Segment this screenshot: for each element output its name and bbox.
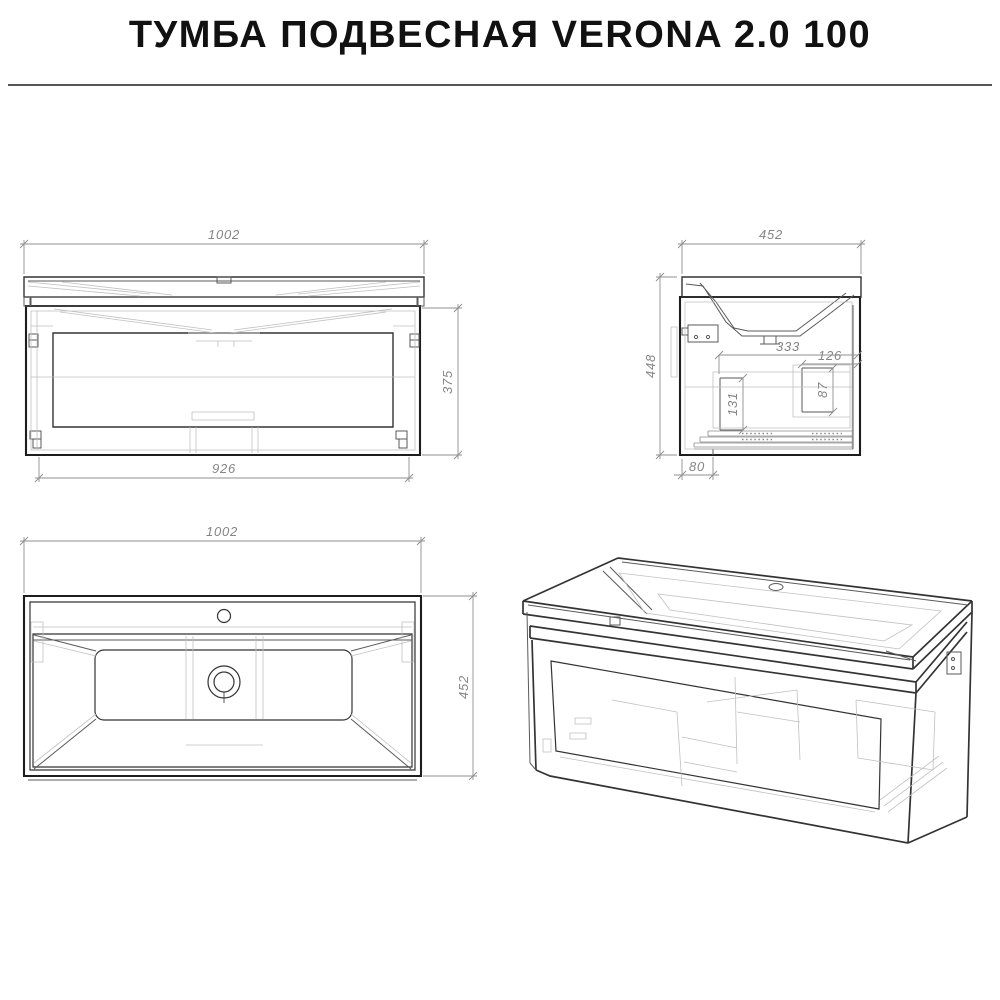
perspective-view bbox=[523, 558, 972, 843]
top-sink-outer-outline bbox=[24, 596, 421, 776]
front-dim-height-right-label: 375 bbox=[440, 370, 455, 394]
side-dim-bottom-offset-label: 80 bbox=[689, 459, 705, 474]
technical-drawing-canvas: 1002 375 926 452 448 333 126 131 87 80 bbox=[0, 0, 1000, 1000]
side-basin-section-and-details bbox=[682, 283, 854, 455]
top-drain-inner-ring bbox=[214, 672, 234, 692]
perspective-bracket-hole-top bbox=[952, 658, 955, 661]
front-bracket-details bbox=[29, 334, 419, 448]
top-dim-depth-label: 452 bbox=[456, 675, 471, 699]
front-cabinet-outline bbox=[26, 306, 420, 455]
side-rail-hole-dots bbox=[742, 434, 842, 440]
side-dim-inner-width-small-label: 126 bbox=[818, 348, 842, 363]
front-sink-rim-band bbox=[24, 277, 424, 297]
perspective-bracket-hole-bottom bbox=[952, 667, 955, 670]
side-internal-faint-panels bbox=[671, 302, 852, 449]
front-view: 1002 375 926 bbox=[20, 227, 462, 482]
side-dim-height-left-label: 448 bbox=[643, 354, 658, 378]
front-drawer-front-outline bbox=[53, 333, 393, 427]
side-dim-width-top-label: 452 bbox=[759, 227, 783, 242]
top-basin-floor bbox=[95, 650, 352, 720]
top-basin-corner-slopes bbox=[28, 635, 417, 780]
perspective-outer-wireframe bbox=[523, 558, 972, 843]
front-dim-width-bottom-label: 926 bbox=[212, 461, 236, 476]
side-dim-inner-height-small-label: 87 bbox=[815, 382, 830, 398]
side-dim-inner-height-label: 131 bbox=[725, 392, 740, 416]
side-dim-inner-width-label: 333 bbox=[776, 339, 800, 354]
side-bracket-hole-right bbox=[706, 335, 709, 338]
top-faucet-hole bbox=[218, 610, 231, 623]
top-view: 1002 452 bbox=[20, 524, 477, 780]
perspective-faucet-hole bbox=[769, 584, 783, 591]
top-dim-width-label: 1002 bbox=[206, 524, 238, 539]
side-bracket-hole-left bbox=[694, 335, 697, 338]
top-basin-opening bbox=[33, 634, 412, 767]
top-dimension-lines bbox=[20, 537, 477, 780]
perspective-interior-faint-lines bbox=[543, 573, 947, 812]
perspective-drawer-opening bbox=[551, 661, 881, 809]
drawing-sheet: ТУМБА ПОДВЕСНАЯ VERONA 2.0 100 1002 375 … bbox=[0, 0, 1000, 1000]
top-faint-details bbox=[31, 622, 414, 763]
front-dim-width-top-label: 1002 bbox=[208, 227, 240, 242]
side-view: 452 448 333 126 131 87 80 bbox=[643, 227, 865, 480]
front-rim-lip-and-tabs bbox=[24, 277, 424, 306]
